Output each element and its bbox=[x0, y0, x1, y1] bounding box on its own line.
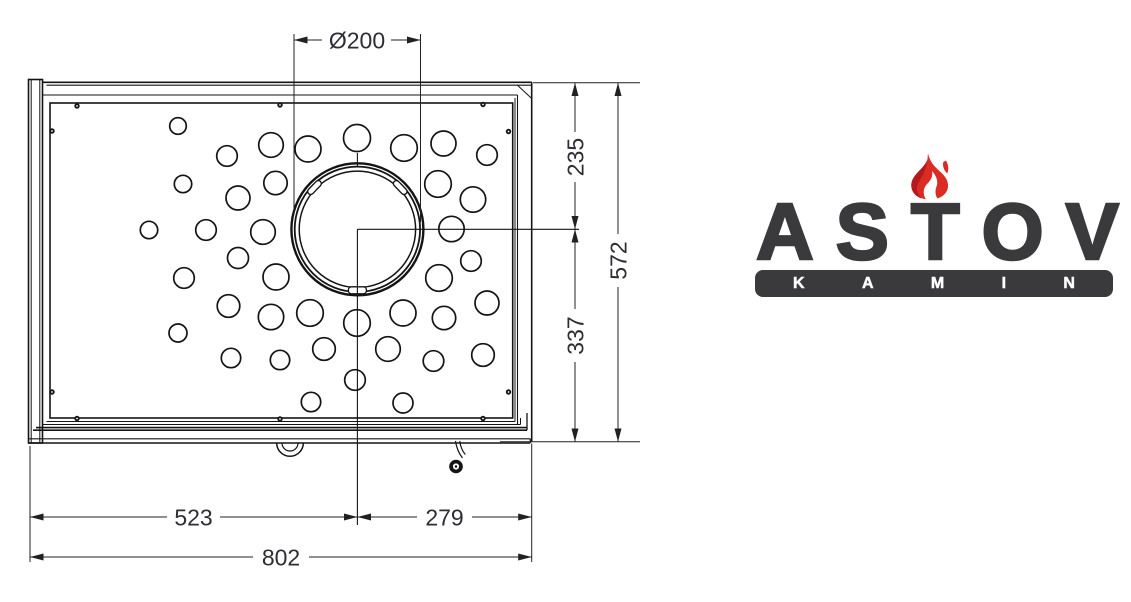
subtitle-letter: N bbox=[1063, 270, 1075, 297]
dim-802: 802 bbox=[30, 544, 532, 570]
dim-235: 235 bbox=[562, 83, 588, 230]
dim-279: 279 bbox=[357, 504, 531, 530]
screw-center bbox=[279, 104, 281, 106]
vent-hole bbox=[393, 393, 413, 413]
screws bbox=[49, 102, 511, 422]
screw-center bbox=[51, 130, 53, 132]
vent-hole bbox=[169, 324, 187, 342]
dim-label-802: 802 bbox=[262, 544, 300, 570]
vent-hole bbox=[295, 136, 321, 162]
vent-hole bbox=[477, 145, 498, 166]
screw-center bbox=[508, 391, 510, 393]
vent-hole bbox=[460, 187, 485, 212]
brand-letter: A bbox=[756, 192, 814, 272]
vent-hole bbox=[475, 291, 499, 315]
vent-hole bbox=[426, 265, 453, 292]
ventilation-holes bbox=[140, 118, 499, 413]
subtitle-letter: I bbox=[1002, 270, 1006, 297]
brand-letter: V bbox=[1066, 192, 1119, 272]
vent-hole bbox=[301, 392, 320, 411]
vent-hole bbox=[264, 171, 287, 194]
dim-label-572: 572 bbox=[605, 241, 631, 279]
vent-hole bbox=[390, 300, 416, 326]
vent-hole bbox=[376, 337, 401, 362]
vent-hole bbox=[431, 131, 456, 156]
vent-hole bbox=[217, 295, 240, 318]
vent-hole bbox=[313, 338, 336, 361]
dim-572: 572 bbox=[605, 83, 631, 442]
screw-center bbox=[482, 104, 484, 106]
vent-hole bbox=[140, 221, 157, 238]
vent-hole bbox=[425, 171, 452, 198]
vent-hole bbox=[251, 220, 276, 245]
vent-hole bbox=[345, 370, 366, 391]
vent-hole bbox=[344, 125, 371, 152]
vent-hole bbox=[263, 264, 289, 290]
dim-label-279: 279 bbox=[425, 504, 463, 530]
vent-hole bbox=[174, 268, 195, 289]
technical-drawing: Ø200 235 337 572 bbox=[0, 0, 1131, 602]
dim-label-flue: Ø200 bbox=[329, 27, 385, 53]
vent-hole bbox=[258, 304, 283, 329]
subtitle-letter: A bbox=[862, 270, 874, 297]
dim-523: 523 bbox=[30, 504, 357, 530]
vent-hole bbox=[472, 344, 495, 367]
dim-label-235: 235 bbox=[562, 138, 588, 176]
centerlines bbox=[357, 153, 579, 525]
screw-center bbox=[482, 418, 484, 420]
vent-hole bbox=[297, 300, 324, 327]
screw-center bbox=[51, 391, 53, 393]
vent-hole bbox=[174, 175, 191, 192]
vent-hole bbox=[226, 186, 250, 210]
body-outline bbox=[29, 80, 532, 444]
subtitle-letter: K bbox=[793, 270, 805, 297]
door-handle bbox=[277, 443, 304, 456]
vent-hole bbox=[432, 306, 455, 329]
vent-hole bbox=[217, 146, 238, 167]
dimensions: Ø200 235 337 572 bbox=[30, 27, 640, 570]
brand-letter: S bbox=[836, 192, 889, 272]
vent-hole bbox=[423, 351, 444, 372]
vent-hole bbox=[170, 118, 187, 135]
brand-letter: O bbox=[982, 192, 1044, 272]
subtitle-letter: M bbox=[931, 270, 944, 297]
screw-center bbox=[508, 131, 510, 133]
brand-letter: T bbox=[911, 192, 960, 272]
brand-subtitle-bar: KAMIN bbox=[755, 270, 1113, 297]
page: Ø200 235 337 572 bbox=[0, 0, 1131, 602]
vent-hole bbox=[259, 133, 284, 158]
vent-hole bbox=[221, 348, 240, 367]
dim-337: 337 bbox=[562, 229, 588, 441]
vent-hole bbox=[228, 248, 249, 269]
vent-hole bbox=[270, 350, 289, 369]
screw-center bbox=[279, 418, 281, 420]
brand-name: ASTOV bbox=[756, 192, 1119, 272]
dim-label-523: 523 bbox=[174, 504, 212, 530]
vent-hole bbox=[391, 135, 418, 162]
latch-lever bbox=[449, 441, 465, 473]
vent-hole bbox=[196, 220, 217, 241]
screw-center bbox=[76, 105, 78, 107]
screw-center bbox=[76, 418, 78, 420]
dim-label-337: 337 bbox=[562, 316, 588, 354]
vent-hole bbox=[461, 251, 482, 272]
